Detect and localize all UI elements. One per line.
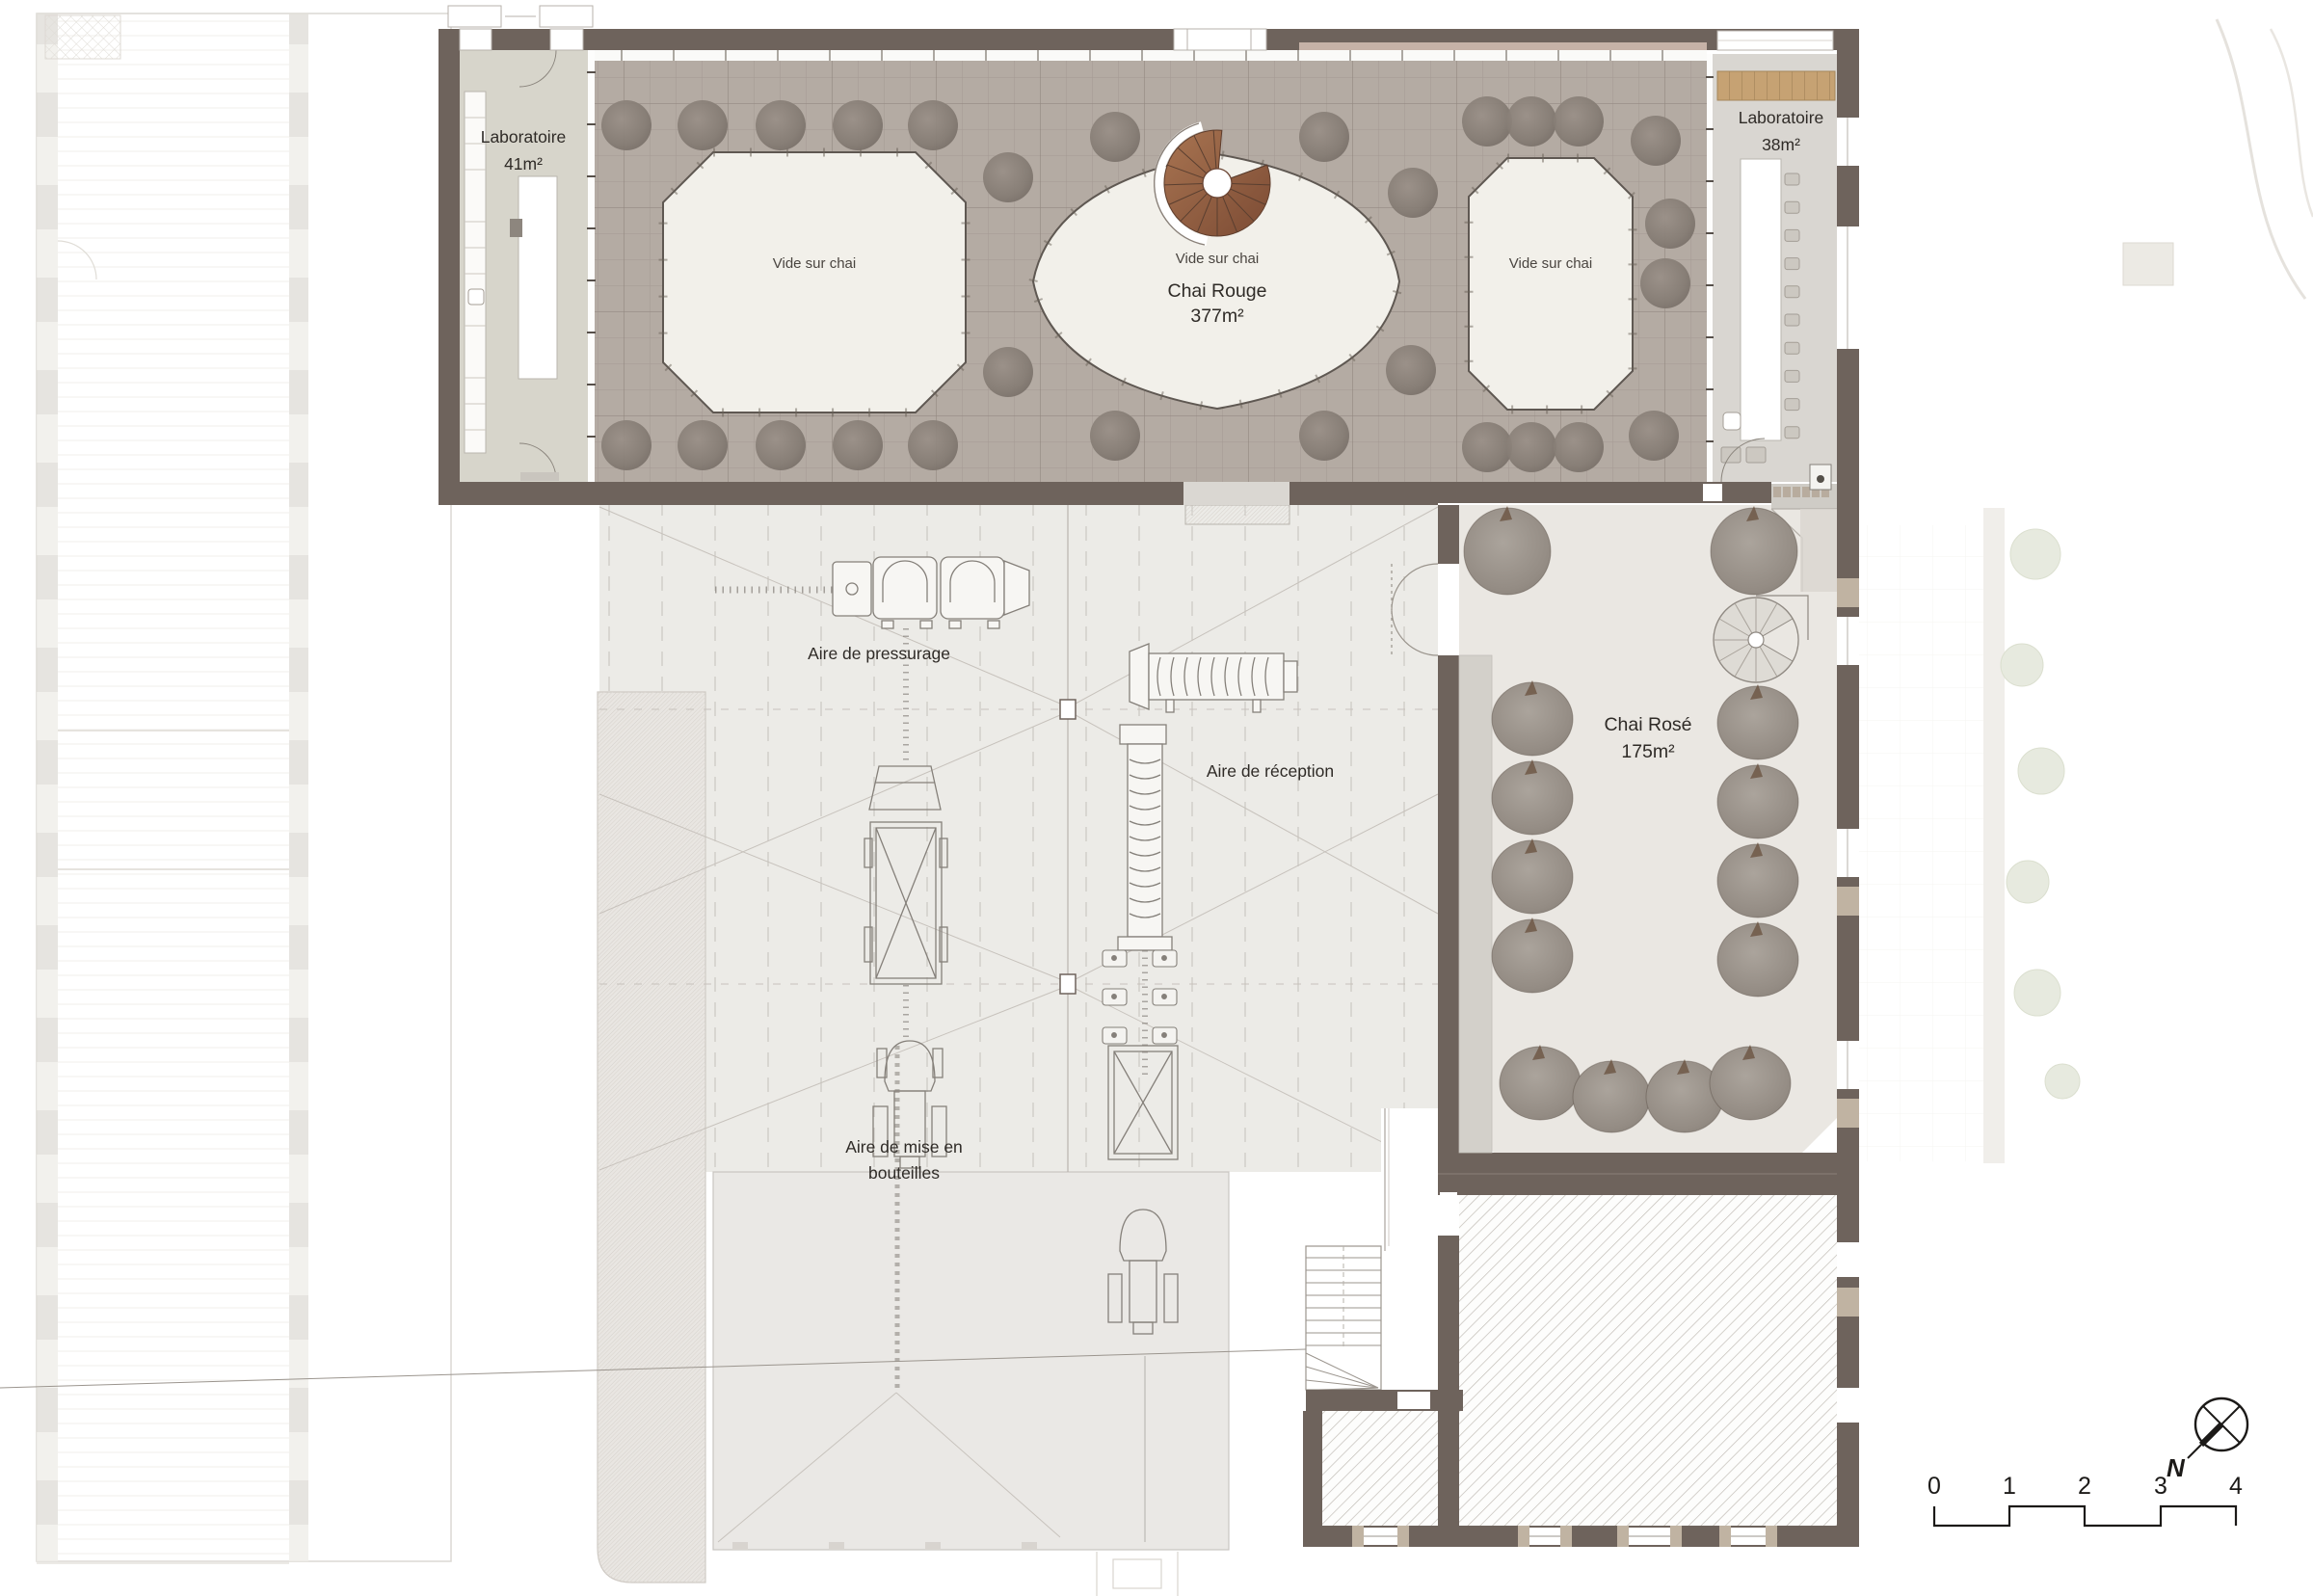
label-vide-sur-chai-1: Vide sur chai bbox=[773, 255, 856, 272]
chai-rose-room: Chai Rosé 175m² bbox=[1459, 484, 1837, 1153]
label-chai-rose-area: 175m² bbox=[1621, 741, 1675, 762]
storage-door-gap bbox=[1397, 1392, 1430, 1409]
label-laboratoire-41: Laboratoire bbox=[481, 127, 567, 146]
sink-icon bbox=[468, 289, 484, 305]
corridor bbox=[1381, 1108, 1442, 1411]
label-vide-sur-chai-3: Vide sur chai bbox=[1509, 255, 1592, 272]
storage-room-hatch bbox=[1459, 1195, 1837, 1526]
east-walkway bbox=[1800, 509, 1837, 592]
wine-tank bbox=[1462, 422, 1512, 472]
sink-icon bbox=[1723, 412, 1741, 430]
wine-tank bbox=[1506, 96, 1556, 146]
corridor-window bbox=[1440, 1192, 1457, 1236]
tree-icon bbox=[2045, 1064, 2080, 1099]
wine-tank bbox=[1554, 96, 1604, 146]
wine-tank bbox=[833, 420, 883, 470]
label-aire-reception: Aire de réception bbox=[1207, 761, 1334, 781]
tree-icon bbox=[2018, 748, 2064, 794]
stool bbox=[1785, 201, 1799, 213]
stool bbox=[1785, 342, 1799, 354]
label-aire-bouteilles-2: bouteilles bbox=[868, 1163, 940, 1183]
wine-tank bbox=[1090, 411, 1140, 461]
terrace-hatch bbox=[45, 15, 120, 59]
stool bbox=[1785, 427, 1799, 439]
lab41-table bbox=[518, 176, 557, 379]
wine-tank bbox=[983, 347, 1033, 397]
stool bbox=[1785, 229, 1799, 241]
wine-tank bbox=[908, 420, 958, 470]
north-label: N bbox=[2167, 1453, 2186, 1482]
wine-tank bbox=[756, 100, 806, 150]
wine-tank bbox=[1640, 258, 1690, 308]
wine-tank bbox=[908, 100, 958, 150]
exterior-step bbox=[448, 6, 501, 27]
wine-tank bbox=[833, 100, 883, 150]
west-walkway bbox=[1459, 655, 1492, 1153]
site-structure bbox=[2123, 243, 2173, 285]
wine-tank bbox=[1629, 411, 1679, 461]
tree-icon bbox=[2001, 644, 2043, 686]
void-right: Vide sur chai bbox=[1469, 158, 1633, 410]
tree-icon bbox=[2014, 970, 2060, 1016]
label-vide-sur-chai-2: Vide sur chai bbox=[1176, 251, 1259, 267]
wine-tank bbox=[601, 420, 651, 470]
label-chai-rouge: Chai Rouge bbox=[1168, 280, 1267, 302]
tree-icon bbox=[2007, 861, 2049, 903]
wood-cabinets bbox=[1717, 71, 1835, 100]
wine-tank bbox=[1464, 508, 1551, 595]
wine-tank bbox=[678, 100, 728, 150]
label-laboratoire-38: Laboratoire bbox=[1739, 108, 1824, 127]
tree-icon bbox=[2010, 529, 2060, 579]
label-laboratoire-41-area: 41m² bbox=[504, 154, 543, 173]
wall-accent bbox=[1299, 42, 1707, 50]
roof-post bbox=[1060, 700, 1076, 719]
hall-floor-bottling bbox=[713, 1172, 1229, 1550]
label-aire-pressurage: Aire de pressurage bbox=[808, 644, 950, 663]
stool bbox=[1785, 258, 1799, 270]
loading-dock-hatch bbox=[1185, 505, 1289, 524]
label-aire-bouteilles-1: Aire de mise en bbox=[845, 1137, 963, 1157]
wine-tank bbox=[1299, 112, 1349, 162]
roof-post bbox=[1060, 974, 1076, 994]
void-left: Vide sur chai bbox=[663, 152, 966, 412]
wine-tank bbox=[1388, 168, 1438, 218]
wine-tank bbox=[678, 420, 728, 470]
scale-tick-0: 0 bbox=[1927, 1473, 1941, 1500]
exterior-step bbox=[540, 6, 593, 27]
floor-plan-page: Aire de pressurage Aire de réception Air… bbox=[0, 0, 2313, 1596]
label-chai-rouge-area: 377m² bbox=[1190, 306, 1244, 327]
wine-tank bbox=[1711, 508, 1797, 595]
lab41-glass-wall bbox=[588, 50, 595, 482]
wine-tank bbox=[1462, 96, 1512, 146]
floor-plan-svg: Aire de pressurage Aire de réception Air… bbox=[0, 0, 2313, 1596]
wine-tank bbox=[1090, 112, 1140, 162]
wine-tank bbox=[1554, 422, 1604, 472]
stool bbox=[1785, 173, 1799, 185]
wine-tank bbox=[601, 100, 651, 150]
lab41-equipment bbox=[510, 219, 522, 237]
stool bbox=[1785, 286, 1799, 298]
scale-tick-4: 4 bbox=[2229, 1473, 2243, 1500]
wine-tank bbox=[983, 152, 1033, 202]
lab38-table bbox=[1741, 159, 1781, 440]
stool bbox=[1785, 399, 1799, 411]
wine-tank bbox=[1631, 116, 1681, 166]
lab38-glass-wall bbox=[1707, 54, 1713, 482]
stool bbox=[1785, 314, 1799, 326]
stool bbox=[1785, 370, 1799, 382]
label-laboratoire-38-area: 38m² bbox=[1762, 135, 1800, 154]
wine-tank bbox=[1506, 422, 1556, 472]
scale-tick-2: 2 bbox=[2078, 1473, 2091, 1500]
scale-tick-1: 1 bbox=[2003, 1473, 2016, 1500]
wine-tank bbox=[1645, 199, 1695, 249]
wine-tank bbox=[1299, 411, 1349, 461]
wine-tank bbox=[1386, 345, 1436, 395]
scale-tick-3: 3 bbox=[2154, 1473, 2167, 1500]
wine-tank bbox=[756, 420, 806, 470]
north-glazing bbox=[595, 50, 1707, 61]
label-chai-rose: Chai Rosé bbox=[1604, 714, 1691, 735]
